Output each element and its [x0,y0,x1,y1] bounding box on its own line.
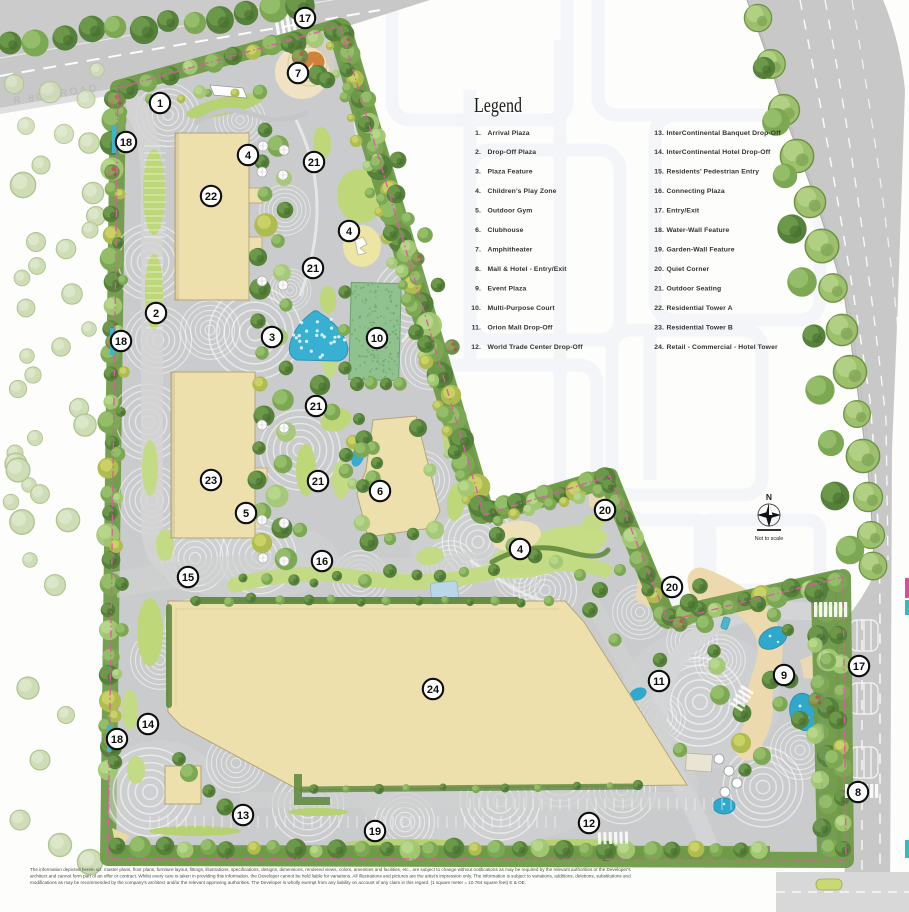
svg-text:24: 24 [427,684,440,696]
svg-text:Mall & Hotel - Entry/Exit: Mall & Hotel - Entry/Exit [488,266,568,273]
svg-text:InterContinental Hotel Drop-Of: InterContinental Hotel Drop-Off [667,149,772,156]
svg-text:20: 20 [666,582,678,594]
svg-text:14.: 14. [654,149,664,156]
svg-text:21: 21 [308,157,320,169]
svg-text:Arrival Plaza: Arrival Plaza [488,130,530,137]
svg-text:8: 8 [855,787,861,799]
svg-text:Entry/Exit: Entry/Exit [667,208,700,215]
svg-text:17.: 17. [654,208,664,215]
svg-text:7: 7 [295,68,301,80]
svg-text:Event Plaza: Event Plaza [488,285,527,292]
svg-text:10.: 10. [471,305,481,312]
svg-text:21: 21 [312,476,324,488]
svg-text:19.: 19. [654,247,664,254]
svg-text:World Trade Center Drop-Off: World Trade Center Drop-Off [488,344,584,351]
svg-text:modifications as may be recomm: modifications as may be recommended by t… [30,880,526,885]
svg-text:N: N [766,492,772,502]
svg-text:Outdoor Seating: Outdoor Seating [667,285,722,292]
svg-text:Water-Wall Feature: Water-Wall Feature [667,227,730,234]
svg-text:6: 6 [377,486,383,498]
svg-text:1.: 1. [475,130,481,137]
svg-text:Orion Mall Drop-Off: Orion Mall Drop-Off [488,324,554,331]
svg-text:15.: 15. [654,169,664,176]
svg-text:Quiet Corner: Quiet Corner [667,266,710,273]
svg-text:Plaza Feature: Plaza Feature [488,169,533,176]
svg-text:Connecting Plaza: Connecting Plaza [667,188,725,195]
svg-text:17: 17 [853,661,865,673]
svg-text:15: 15 [182,572,194,584]
svg-text:4: 4 [245,150,252,162]
svg-text:10: 10 [371,333,383,345]
svg-text:18: 18 [120,137,132,149]
svg-text:Not to scale: Not to scale [755,536,783,542]
svg-text:Outdoor Gym: Outdoor Gym [488,208,533,215]
svg-text:Residential Tower A: Residential Tower A [667,305,733,312]
svg-text:Legend: Legend [474,93,522,117]
svg-text:23: 23 [205,475,217,487]
svg-text:9.: 9. [475,285,481,292]
svg-text:Garden-Wall Feature: Garden-Wall Feature [667,247,735,254]
svg-text:3: 3 [269,332,275,344]
svg-text:22.: 22. [654,305,664,312]
svg-text:4: 4 [517,544,524,556]
svg-text:16.: 16. [654,188,664,195]
svg-text:18.: 18. [654,227,664,234]
svg-text:19: 19 [369,826,381,838]
svg-text:13.: 13. [654,130,664,137]
svg-text:17: 17 [299,13,311,25]
svg-text:12: 12 [583,818,595,830]
svg-text:23.: 23. [654,324,664,331]
svg-text:21: 21 [310,401,322,413]
svg-text:9: 9 [781,670,787,682]
svg-text:18: 18 [115,336,127,348]
svg-text:Multi-Purpose Court: Multi-Purpose Court [488,305,556,312]
svg-text:2.: 2. [475,149,481,156]
svg-text:Residents’ Pedestrian Entry: Residents’ Pedestrian Entry [667,169,760,176]
svg-text:Amphitheater: Amphitheater [488,247,533,254]
svg-text:3.: 3. [475,169,481,176]
svg-text:architect and cannot form part: architect and cannot form part of an off… [30,874,631,879]
svg-text:7.: 7. [475,247,481,254]
svg-text:1: 1 [157,98,163,110]
svg-text:4.: 4. [475,188,481,195]
svg-text:5.: 5. [475,208,481,215]
svg-text:20.: 20. [654,266,664,273]
svg-text:8.: 8. [475,266,481,273]
svg-text:InterContinental Banquet Drop-: InterContinental Banquet Drop-Off [667,130,782,137]
svg-text:18: 18 [111,734,123,746]
svg-text:5: 5 [243,508,249,520]
svg-text:The information depicted herei: The information depicted herein viz. mas… [30,867,631,872]
svg-text:4: 4 [346,226,353,238]
svg-text:20: 20 [599,505,611,517]
svg-text:Children’s Play Zone: Children’s Play Zone [488,188,557,195]
svg-text:22: 22 [205,191,217,203]
svg-text:Clubhouse: Clubhouse [488,227,524,234]
svg-text:11: 11 [653,676,665,688]
svg-text:Retail - Commercial - Hotel To: Retail - Commercial - Hotel Tower [667,344,778,351]
svg-text:16: 16 [316,556,328,568]
svg-text:14: 14 [142,719,155,731]
svg-text:Drop-Off Plaza: Drop-Off Plaza [488,149,537,156]
svg-text:Residential Tower B: Residential Tower B [667,324,733,331]
svg-text:2: 2 [153,308,159,320]
svg-text:21.: 21. [654,285,664,292]
svg-text:24.: 24. [654,344,664,351]
svg-text:21: 21 [307,263,319,275]
svg-text:12.: 12. [471,344,481,351]
svg-text:11.: 11. [472,324,481,331]
svg-text:13: 13 [237,810,249,822]
svg-text:6.: 6. [475,227,481,234]
